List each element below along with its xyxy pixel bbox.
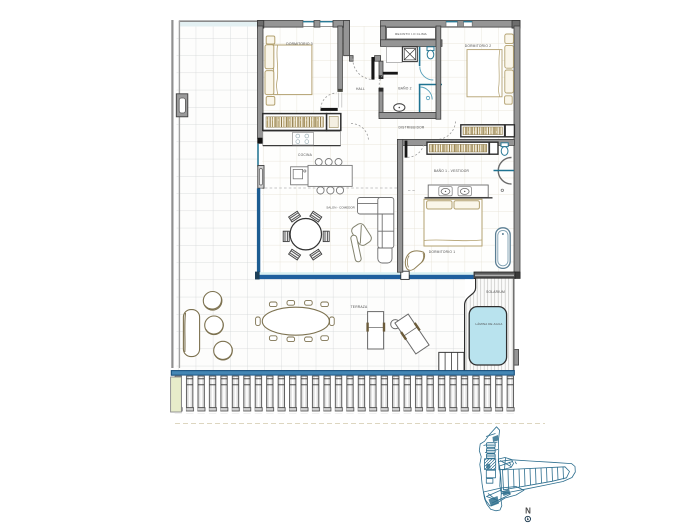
svg-text:SOLARIUM: SOLARIUM xyxy=(486,290,505,294)
svg-text:TERRAZA: TERRAZA xyxy=(351,305,368,309)
svg-text:HALL: HALL xyxy=(356,87,365,91)
svg-text:N: N xyxy=(525,507,531,516)
svg-text:DORMITORIO 3: DORMITORIO 3 xyxy=(286,42,313,46)
svg-text:RECINTO I.O CLIMA: RECINTO I.O CLIMA xyxy=(395,32,427,36)
svg-text:LÁMINA DE AGUA: LÁMINA DE AGUA xyxy=(475,322,502,326)
svg-text:BAÑO 2: BAÑO 2 xyxy=(398,85,411,90)
svg-text:BAÑO 1 - VESTIDOR: BAÑO 1 - VESTIDOR xyxy=(434,168,470,173)
svg-text:COCINA: COCINA xyxy=(298,153,313,157)
svg-text:SALON - COMEDOR: SALON - COMEDOR xyxy=(326,206,355,210)
svg-text:DORMITORIO 2: DORMITORIO 2 xyxy=(465,44,492,48)
svg-text:DISTRIBUIDOR: DISTRIBUIDOR xyxy=(398,125,424,129)
svg-text:DORMITORIO 1: DORMITORIO 1 xyxy=(429,250,456,254)
